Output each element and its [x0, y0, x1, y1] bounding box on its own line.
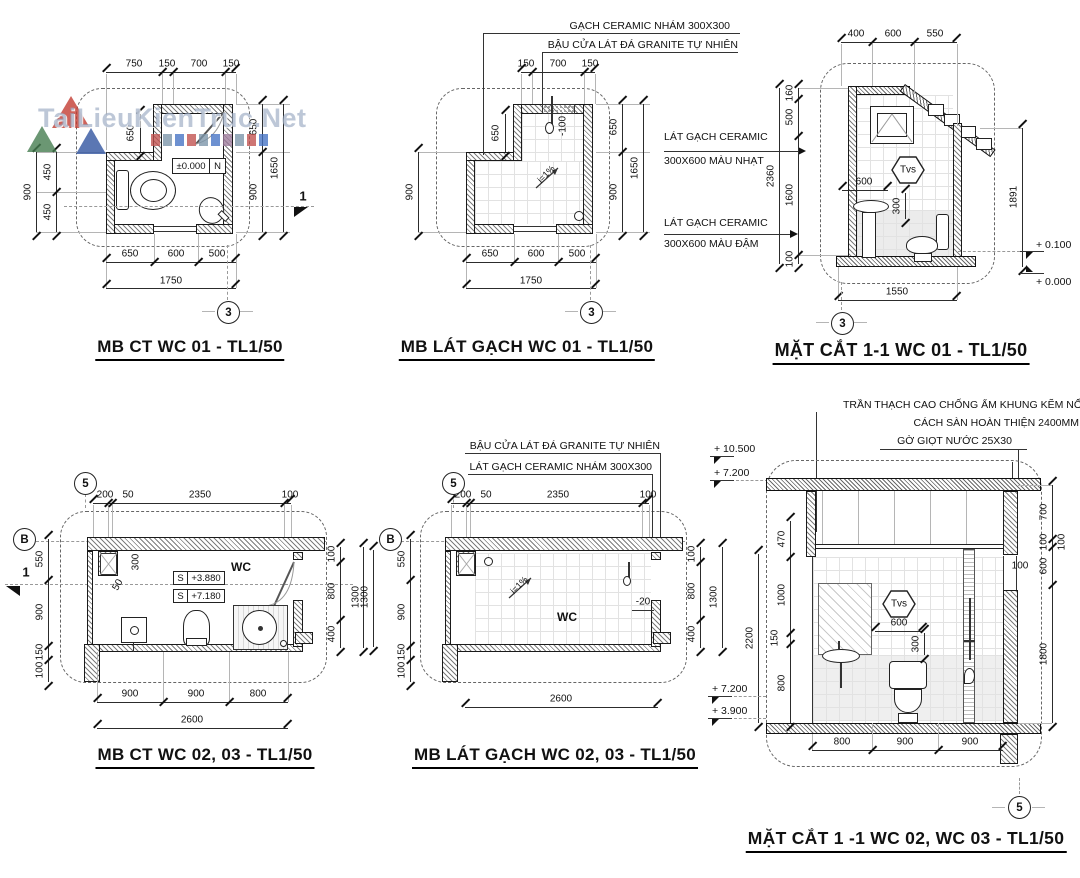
- bubble-tick: [854, 322, 867, 323]
- dim-line: [1022, 128, 1023, 267]
- dim-line: [841, 42, 957, 43]
- bubble-tick: [603, 311, 616, 312]
- dim-line: [97, 728, 288, 729]
- wall: [442, 644, 458, 682]
- extension-line: [798, 88, 848, 89]
- shower-head: [964, 668, 975, 684]
- level-label: + 7.200: [714, 467, 749, 479]
- grid-bubble: B: [379, 528, 402, 551]
- annotation: LÁT GẠCH CERAMIC: [664, 131, 768, 143]
- extension-line: [451, 505, 452, 537]
- grid-bubble: 3: [580, 301, 603, 324]
- granite-sill: [542, 104, 575, 114]
- floor-drain: [484, 557, 493, 566]
- level-label: + 10.500: [714, 443, 755, 455]
- dim-line: [451, 503, 649, 504]
- wall: [556, 224, 593, 234]
- dim-label: 50: [480, 490, 491, 501]
- wall-line: [812, 557, 813, 723]
- dim-label: 450: [43, 164, 54, 181]
- annotation: GẠCH CERAMIC NHÁM 300X300: [540, 20, 730, 32]
- extension-line: [514, 234, 515, 262]
- wall: [848, 86, 857, 264]
- section-number: 1: [22, 565, 29, 580]
- annotation: 300X600 MÀU NHẠT: [664, 155, 764, 167]
- dim-label: 150: [770, 630, 781, 647]
- grid-axis: [85, 494, 86, 508]
- dim-label: 800: [834, 737, 851, 748]
- leader-line: [664, 234, 794, 235]
- extension-line: [36, 232, 106, 233]
- level-line: [1020, 273, 1044, 274]
- extension-line: [957, 44, 958, 126]
- extension-line: [938, 723, 939, 750]
- extension-line: [93, 505, 94, 537]
- bubble-tick: [992, 807, 1005, 808]
- grid-axis: [590, 245, 591, 300]
- dim-line: [779, 88, 780, 264]
- extension-line: [236, 74, 237, 104]
- level-flag: [712, 719, 719, 726]
- dim-label: 1750: [520, 276, 542, 287]
- dim-label: 100: [687, 546, 698, 563]
- level-prefix: S: [174, 590, 188, 602]
- leader-line: [483, 33, 484, 155]
- annotation: LÁT GẠCH CERAMIC NHÁM 300X300: [468, 461, 652, 473]
- extension-line: [36, 192, 106, 193]
- level-label: + 7.200: [712, 683, 747, 695]
- dim-label: 100: [282, 490, 299, 501]
- toilet-base: [898, 713, 918, 723]
- dim-label: 150: [159, 59, 176, 70]
- dim-label: 100: [1057, 534, 1068, 551]
- section-line: [64, 206, 314, 207]
- dim-label: 2600: [550, 694, 572, 705]
- sprayer-head: [545, 122, 554, 134]
- room-label: WC: [231, 560, 251, 574]
- dim-label: 1600: [785, 184, 796, 206]
- dim-label: 600: [885, 29, 902, 40]
- bubble-tick: [1032, 807, 1045, 808]
- extension-line: [108, 505, 109, 537]
- toilet-tank: [889, 661, 927, 689]
- extension-line: [649, 505, 650, 537]
- extension-line: [106, 74, 107, 150]
- dim-label: 650: [249, 119, 260, 136]
- floor-drain: [574, 211, 584, 221]
- dim-line: [373, 550, 374, 647]
- level-box: ±0.000 N: [172, 158, 226, 174]
- dim-label: 800: [687, 583, 698, 600]
- door-sill-line: [514, 226, 556, 227]
- dim-label: 800: [250, 689, 267, 700]
- dim-label: 300: [131, 554, 142, 571]
- dim-label: 1550: [886, 287, 908, 298]
- level-box: S +7.180: [173, 589, 225, 603]
- column-box: [458, 553, 475, 575]
- wall: [451, 644, 661, 652]
- leader-line: [468, 474, 652, 475]
- wall: [651, 552, 661, 560]
- dim-line: [466, 288, 596, 289]
- dim-label: 100: [1039, 534, 1050, 551]
- extension-line: [154, 234, 155, 262]
- extension-line: [798, 255, 848, 256]
- dim-label: 900: [122, 689, 139, 700]
- wall: [196, 224, 233, 234]
- tvs-label: Tvs: [891, 599, 907, 610]
- dim-label: 1300: [709, 586, 720, 608]
- grid-bubble: 5: [74, 472, 97, 495]
- level-value: +3.880: [188, 572, 224, 584]
- dim-label: 800: [777, 675, 788, 692]
- floor-slab: [836, 256, 976, 267]
- panel-title: MB LÁT GẠCH WC 01 - TL1/50: [399, 337, 655, 361]
- extension-line: [532, 74, 533, 104]
- level-flag: [714, 481, 721, 488]
- section-arrow: [294, 207, 308, 217]
- toilet-tank: [116, 170, 129, 210]
- dim-label: 900: [35, 604, 46, 621]
- wall: [953, 123, 962, 264]
- wall: [87, 551, 93, 655]
- dim-label: 100: [397, 662, 408, 679]
- leader-line: [664, 151, 802, 152]
- dim-label: 100: [785, 251, 796, 268]
- annotation: BẬU CỬA LÁT ĐÁ GRANITE TỰ NHIÊN: [465, 440, 660, 452]
- dim-label: 400: [327, 626, 338, 643]
- dim-line: [505, 114, 506, 152]
- parapet-line: [1012, 462, 1013, 478]
- leader-line: [465, 453, 661, 454]
- extension-line: [1018, 485, 1052, 486]
- dim-label: 600: [168, 249, 185, 260]
- dim-label: 1650: [270, 157, 281, 179]
- sink-pedestal: [862, 212, 876, 258]
- door-sill-line: [154, 226, 196, 227]
- wall: [106, 152, 115, 234]
- dim-line: [812, 750, 1003, 751]
- panel-title: MẶT CẮT 1 -1 WC 02, WC 03 - TL1/50: [746, 828, 1067, 853]
- dim-line: [262, 104, 263, 232]
- dim-label: 300: [892, 198, 903, 215]
- extension-line: [162, 74, 163, 104]
- extension-line: [980, 128, 1022, 129]
- dim-line: [106, 262, 236, 263]
- dim-label: 50: [122, 490, 133, 501]
- tile-floor: [475, 161, 583, 224]
- extension-line: [112, 505, 113, 537]
- dim-line: [106, 288, 236, 289]
- extension-line: [521, 74, 522, 104]
- dim-label: 1300: [360, 586, 371, 608]
- window-glazing-lines: [870, 106, 914, 144]
- extension-line: [812, 734, 813, 750]
- dim-label: 1800: [1039, 643, 1050, 665]
- level-line: [736, 480, 768, 481]
- floor-drop-label: -20: [636, 597, 650, 608]
- dim-label: 2600: [181, 715, 203, 726]
- dim-label: 700: [1039, 504, 1050, 521]
- dim-label: 900: [249, 184, 260, 201]
- dim-label: 500: [569, 249, 586, 260]
- dim-line: [790, 521, 791, 723]
- dim-label: 650: [491, 125, 502, 142]
- extension-line: [872, 44, 873, 86]
- dim-label: 650: [609, 119, 620, 136]
- section-arrow: [6, 586, 20, 596]
- dim-line: [1052, 485, 1053, 723]
- suspended-ceiling: [812, 544, 1004, 549]
- grid-bubble: B: [13, 528, 36, 551]
- extension-line: [36, 152, 106, 153]
- bubble-tick: [565, 311, 578, 312]
- grid-axis: [227, 245, 228, 300]
- level-flag: [712, 697, 719, 704]
- dim-label: 150: [35, 644, 46, 661]
- dim-line: [722, 547, 723, 648]
- dim-label: 550: [35, 551, 46, 568]
- floor-drop-label: -100: [558, 116, 569, 136]
- panel-title: MB CT WC 02, 03 - TL1/50: [95, 745, 314, 769]
- wall: [295, 632, 313, 644]
- dim-label: 600: [856, 177, 873, 188]
- dim-label: 1750: [160, 276, 182, 287]
- wall: [106, 152, 156, 161]
- level-label: + 3.900: [712, 705, 747, 717]
- grid-axis: [841, 282, 842, 310]
- dim-line: [924, 633, 925, 655]
- extension-line: [914, 44, 915, 94]
- wall-line: [1003, 556, 1004, 590]
- grid-bubble: 5: [442, 472, 465, 495]
- sink-basin: [822, 649, 860, 663]
- extension-line: [291, 505, 292, 537]
- dim-label: 2350: [547, 490, 569, 501]
- level-line: [734, 718, 766, 719]
- dim-label: 100: [327, 546, 338, 563]
- wall: [466, 152, 475, 234]
- dim-label: 400: [687, 626, 698, 643]
- door-swing: [258, 556, 298, 608]
- extension-line: [642, 505, 643, 537]
- dim-line: [758, 554, 759, 723]
- level-box: S +3.880: [173, 571, 225, 585]
- dim-line: [875, 631, 923, 632]
- dim-label: 500: [209, 249, 226, 260]
- dim-line: [36, 152, 37, 232]
- grid-bubble: 3: [831, 312, 854, 335]
- dim-label: 450: [43, 204, 54, 221]
- dim-label: 900: [962, 737, 979, 748]
- toilet-bowl-inner: [140, 179, 167, 202]
- extension-line: [163, 652, 164, 702]
- dim-label: 700: [550, 59, 567, 70]
- door-sill-line: [154, 231, 196, 232]
- extension-line: [466, 234, 467, 288]
- room-label: WC: [557, 610, 577, 624]
- shower-drain: [258, 626, 263, 631]
- extension-line: [229, 652, 230, 702]
- extension-line: [596, 104, 650, 105]
- level-flag: [714, 457, 721, 464]
- wall: [445, 551, 451, 655]
- dim-label: 900: [23, 184, 34, 201]
- bubble-tick: [816, 322, 829, 323]
- dim-label: 200: [97, 490, 114, 501]
- dim-line: [622, 104, 623, 232]
- dim-label: 150: [397, 644, 408, 661]
- panel-title: MB CT WC 01 - TL1/50: [95, 337, 284, 361]
- stair-step: [928, 104, 944, 116]
- ceiling-hanger: [858, 491, 859, 544]
- dim-label: 100: [640, 490, 657, 501]
- panel-title: MẶT CẮT 1-1 WC 01 - TL1/50: [773, 340, 1030, 365]
- leader-line: [483, 33, 740, 34]
- dim-line: [842, 190, 888, 191]
- dim-label: 470: [777, 531, 788, 548]
- sink-tap: [838, 641, 840, 649]
- level-value: ±0.000: [173, 159, 210, 173]
- dim-label: 2200: [745, 627, 756, 649]
- wall: [1003, 491, 1018, 555]
- dim-label: 100: [1012, 561, 1029, 572]
- dim-label: 900: [188, 689, 205, 700]
- ceiling-hanger: [822, 491, 823, 544]
- dim-label: 900: [609, 184, 620, 201]
- architectural-sheet: ±0.000 N 650 750 150 700 150 900 450 450: [0, 0, 1080, 878]
- level-label: + 0.100: [1036, 239, 1071, 251]
- washbasin-stand: [133, 643, 134, 652]
- wall: [87, 537, 325, 551]
- tvs-label: Tvs: [900, 165, 916, 176]
- leader-line: [542, 52, 738, 53]
- level-flag: [1026, 252, 1033, 259]
- shower-rod: [969, 598, 971, 660]
- roof-slab: [766, 478, 1041, 491]
- dim-label: 150: [223, 59, 240, 70]
- stair-step: [976, 138, 992, 150]
- extension-line: [106, 234, 107, 288]
- leader-arrow: [790, 230, 798, 238]
- annotation: BẬU CỬA LÁT ĐÁ GRANITE TỰ NHIÊN: [540, 39, 738, 51]
- dim-label: 300: [911, 636, 922, 653]
- dim-label: 900: [897, 737, 914, 748]
- dim-label: 750: [126, 59, 143, 70]
- wall: [653, 632, 671, 644]
- dim-line: [466, 262, 596, 263]
- extension-line: [418, 232, 466, 233]
- ceiling-hanger: [894, 491, 895, 544]
- tile-floor: [475, 553, 651, 644]
- extension-line: [466, 505, 467, 537]
- dim-label: 160: [785, 85, 796, 102]
- sprayer-head: [623, 576, 631, 586]
- toilet-base: [186, 638, 207, 646]
- wall: [1000, 734, 1018, 764]
- dim-label: 150: [582, 59, 599, 70]
- grid-axis: [1019, 778, 1020, 794]
- annotation: GỜ GIỌT NƯỚC 25X30: [880, 435, 1012, 447]
- washbasin-drain: [130, 626, 139, 635]
- grid-bubble: 3: [217, 301, 240, 324]
- dim-label: 900: [405, 184, 416, 201]
- mirror: [818, 583, 872, 655]
- north-label: N: [210, 159, 225, 173]
- leader-line: [660, 453, 661, 538]
- ceiling-hanger: [966, 491, 967, 544]
- dim-line: [283, 104, 284, 232]
- dim-label: 600: [528, 249, 545, 260]
- leader-arrow: [798, 147, 806, 155]
- level-line: [734, 696, 766, 697]
- dim-line: [798, 88, 799, 264]
- level-prefix: S: [174, 572, 188, 584]
- level-value: +7.180: [188, 590, 224, 602]
- dim-label: 1891: [1009, 186, 1020, 208]
- wall: [1003, 590, 1018, 723]
- leader-line: [542, 52, 543, 104]
- floor-drain: [280, 640, 287, 647]
- dim-label: 700: [191, 59, 208, 70]
- extension-line: [198, 234, 199, 262]
- dim-label: 800: [327, 583, 338, 600]
- parapet-line: [1018, 462, 1019, 478]
- dim-label: 400: [848, 29, 865, 40]
- leader-line: [652, 474, 653, 538]
- leader-line: [880, 449, 1027, 450]
- extension-line: [418, 152, 466, 153]
- column-box: [100, 553, 117, 575]
- floor-slab: [766, 723, 1041, 734]
- wall: [445, 537, 683, 551]
- bubble-tick: [202, 311, 215, 312]
- wall: [153, 104, 162, 161]
- extension-line: [1018, 723, 1052, 724]
- bubble-tick: [240, 311, 253, 312]
- dim-label: 650: [482, 249, 499, 260]
- annotation: 300X600 MÀU ĐẬM: [664, 238, 759, 250]
- shower-sprayer: [551, 96, 553, 124]
- level-flag: [1026, 265, 1033, 272]
- extension-line: [595, 74, 596, 104]
- extension-line: [558, 234, 559, 262]
- dim-label: 1650: [630, 157, 641, 179]
- extension-line: [236, 104, 290, 105]
- dim-label: 900: [397, 604, 408, 621]
- dim-label: 600: [1039, 558, 1050, 575]
- extension-line: [872, 723, 873, 750]
- grid-bubble: 5: [1008, 796, 1031, 819]
- extension-line: [584, 74, 585, 104]
- watermark-logo-triangle-green: [27, 126, 57, 152]
- level-label: + 0.000: [1036, 276, 1071, 288]
- dim-label: 1000: [777, 584, 788, 606]
- dim-line: [643, 104, 644, 232]
- annotation: TRẦN THẠCH CAO CHỐNG ẨM KHUNG KẼM NỔI: [843, 399, 1079, 411]
- annotation: LÁT GẠCH CERAMIC: [664, 217, 768, 229]
- annotation: CÁCH SÀN HOÀN THIỆN 2400MM: [901, 417, 1079, 429]
- section-number: 1: [299, 189, 306, 204]
- dim-label: 650: [122, 249, 139, 260]
- dim-label: 150: [518, 59, 535, 70]
- toilet-base: [914, 253, 932, 262]
- dim-line: [93, 503, 291, 504]
- dim-label: 600: [891, 618, 908, 629]
- stair-step: [960, 126, 976, 138]
- extension-line: [284, 505, 285, 537]
- shower-handle: [964, 640, 975, 642]
